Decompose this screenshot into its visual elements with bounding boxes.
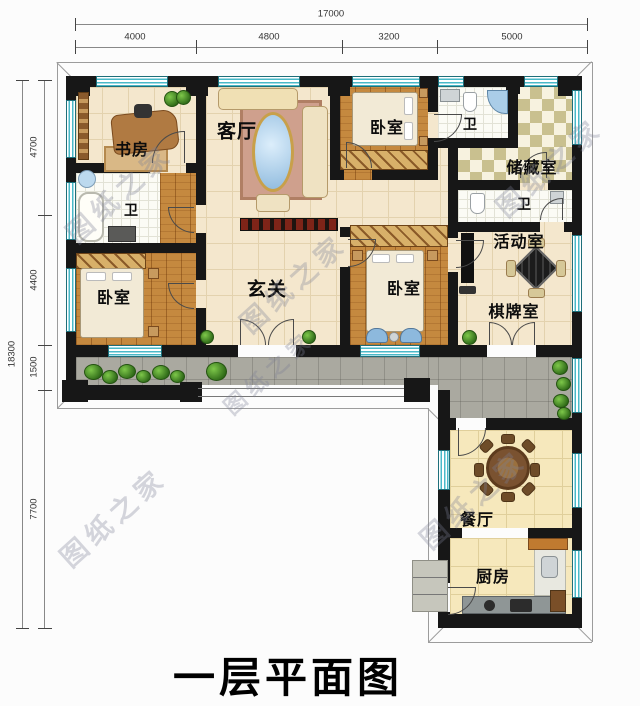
chair <box>556 260 566 277</box>
dim-left-seg-1: 4400 <box>29 269 40 290</box>
room-label-dining: 餐厅 <box>460 506 494 530</box>
nightstand <box>148 326 159 337</box>
plant <box>302 330 316 344</box>
plant <box>552 360 568 375</box>
wall <box>196 233 206 280</box>
plant <box>102 370 118 384</box>
plant <box>152 365 170 380</box>
wall <box>340 227 350 237</box>
desk-chair <box>134 104 152 118</box>
wall <box>508 87 518 138</box>
nightstand <box>419 88 428 98</box>
room-label-bedroom-middle: 卧室 <box>387 275 421 299</box>
plant <box>176 90 191 105</box>
window <box>572 235 582 312</box>
nightstand <box>419 136 428 146</box>
toilet <box>463 92 477 112</box>
plant <box>84 364 103 380</box>
room-label-bedroom-top: 卧室 <box>370 114 404 138</box>
window <box>572 358 582 413</box>
dim-top-seg-line <box>75 47 587 48</box>
dim-tick <box>16 80 29 81</box>
wall <box>296 345 360 357</box>
dim-left-total-line <box>22 80 23 628</box>
window <box>438 76 464 87</box>
dim-left-seg-0: 4700 <box>29 136 40 157</box>
window <box>572 550 582 598</box>
sink-bowl <box>484 600 495 611</box>
dim-tick <box>38 628 52 629</box>
terrace-step-line <box>198 396 404 397</box>
pillow <box>86 272 106 281</box>
tv-cabinet <box>240 218 338 231</box>
pillow <box>396 254 414 263</box>
wall <box>330 87 340 180</box>
wall <box>66 76 76 100</box>
dim-top-seg-0: 4000 <box>124 32 145 43</box>
plant <box>136 370 151 383</box>
cabinet <box>528 538 568 550</box>
window <box>572 90 582 145</box>
window <box>66 100 76 158</box>
dim-tick <box>75 18 76 31</box>
boundary-line <box>57 62 58 408</box>
wall <box>448 148 458 238</box>
tv-stand <box>459 286 476 294</box>
plant <box>556 377 571 391</box>
wall-pillar <box>180 382 202 402</box>
room-label-bath-right: 卫 <box>517 194 531 214</box>
nightstand <box>148 268 159 279</box>
wall <box>162 345 238 357</box>
dim-tick <box>196 40 197 54</box>
boundary-line <box>57 62 592 63</box>
dining-chair <box>501 434 515 444</box>
sink <box>78 170 96 188</box>
plant <box>553 394 569 408</box>
dim-top-seg-3: 5000 <box>501 32 522 43</box>
wall <box>564 222 582 232</box>
cabinet <box>550 590 566 612</box>
dim-tick <box>16 628 29 629</box>
boundary-line <box>592 62 593 642</box>
wall <box>420 345 448 357</box>
wall <box>448 272 458 345</box>
bathtub <box>78 192 104 242</box>
wall <box>528 528 582 538</box>
chair <box>400 328 422 343</box>
vanity <box>108 226 136 242</box>
wall <box>66 345 108 357</box>
window <box>108 345 162 357</box>
dim-tick <box>75 40 76 54</box>
room-label-foyer: 玄关 <box>247 275 287 302</box>
wall-pillar <box>62 380 88 402</box>
wall <box>428 87 438 112</box>
door-leaf <box>562 198 563 220</box>
nightstand <box>427 250 438 261</box>
window <box>572 453 582 508</box>
kitchen-sink <box>541 556 558 578</box>
room-label-living: 客厅 <box>217 117 257 144</box>
wardrobe <box>76 253 146 269</box>
dim-tick <box>587 40 588 54</box>
side-table <box>389 332 399 342</box>
wall <box>448 345 487 357</box>
window <box>360 345 420 357</box>
dining-chair <box>530 463 540 477</box>
wall <box>448 180 520 190</box>
dim-tick <box>38 345 52 346</box>
chair <box>528 288 545 298</box>
sofa <box>302 106 328 198</box>
dim-left-seg-3: 7700 <box>29 498 40 519</box>
room-label-study: 书房 <box>115 136 149 160</box>
window <box>66 182 76 240</box>
chair <box>366 328 388 343</box>
loveseat <box>218 88 298 110</box>
dim-top-seg-2: 3200 <box>378 32 399 43</box>
room-label-bath-top: 卫 <box>463 114 477 134</box>
room-label-chess: 棋牌室 <box>488 298 539 322</box>
wall <box>548 180 582 190</box>
coffee-table <box>252 112 294 192</box>
wall <box>438 614 582 628</box>
pillow <box>404 97 413 115</box>
wall <box>66 243 206 253</box>
floor-plan-sheet: 17000 4000 4800 3200 5000 18300 4700 440… <box>0 0 640 706</box>
dim-tick <box>342 40 343 54</box>
plant <box>557 407 571 420</box>
chair <box>506 260 516 277</box>
room-label-bedroom-left: 卧室 <box>97 284 131 308</box>
wall <box>196 87 206 205</box>
boundary-line <box>57 408 428 409</box>
boundary-line <box>428 642 592 643</box>
step-line <box>413 594 447 595</box>
window <box>438 450 450 490</box>
dim-top-total-line <box>75 24 587 25</box>
sink <box>440 89 460 102</box>
wall <box>340 267 350 345</box>
window <box>524 76 558 87</box>
pillow <box>404 122 413 140</box>
terrace-step-line <box>198 388 404 389</box>
footstool <box>256 194 290 212</box>
room-label-activity: 活动室 <box>493 228 544 252</box>
plant <box>118 364 136 379</box>
room-label-kitchen: 厨房 <box>476 563 510 587</box>
dining-chair <box>501 492 515 502</box>
plan-title: 一层平面图 <box>173 644 403 705</box>
room-label-storage: 储藏室 <box>506 154 557 178</box>
pillow <box>112 272 132 281</box>
bookshelf <box>78 92 89 160</box>
step-line <box>413 577 447 578</box>
dim-left-total: 18300 <box>7 341 18 367</box>
dim-tick <box>38 80 52 81</box>
wall <box>572 76 582 90</box>
plant <box>462 330 477 345</box>
watermark: 图纸之家 <box>50 457 174 574</box>
toilet <box>470 193 485 214</box>
dim-tick <box>587 18 588 31</box>
wall-pillar <box>404 378 430 402</box>
dim-left-seg-line <box>44 80 45 628</box>
dim-tick <box>38 215 52 216</box>
dim-tick <box>437 40 438 54</box>
plant <box>200 330 214 344</box>
stove <box>510 599 532 612</box>
door-leaf <box>184 131 185 163</box>
wall <box>486 418 582 430</box>
pillow <box>372 254 390 263</box>
dim-left-seg-2: 1500 <box>29 356 40 377</box>
plant <box>206 362 227 381</box>
dim-top-total: 17000 <box>318 9 344 20</box>
window <box>66 268 76 332</box>
wall <box>428 140 438 180</box>
window <box>218 76 300 87</box>
dining-table <box>486 446 530 490</box>
steps <box>412 560 448 612</box>
plant <box>170 370 185 383</box>
window <box>96 76 168 87</box>
wall <box>536 345 582 357</box>
dining-chair <box>474 463 484 477</box>
window <box>352 76 420 87</box>
dim-top-seg-1: 4800 <box>258 32 279 43</box>
room-label-bath-left: 卫 <box>124 200 138 220</box>
dim-tick <box>38 390 52 391</box>
